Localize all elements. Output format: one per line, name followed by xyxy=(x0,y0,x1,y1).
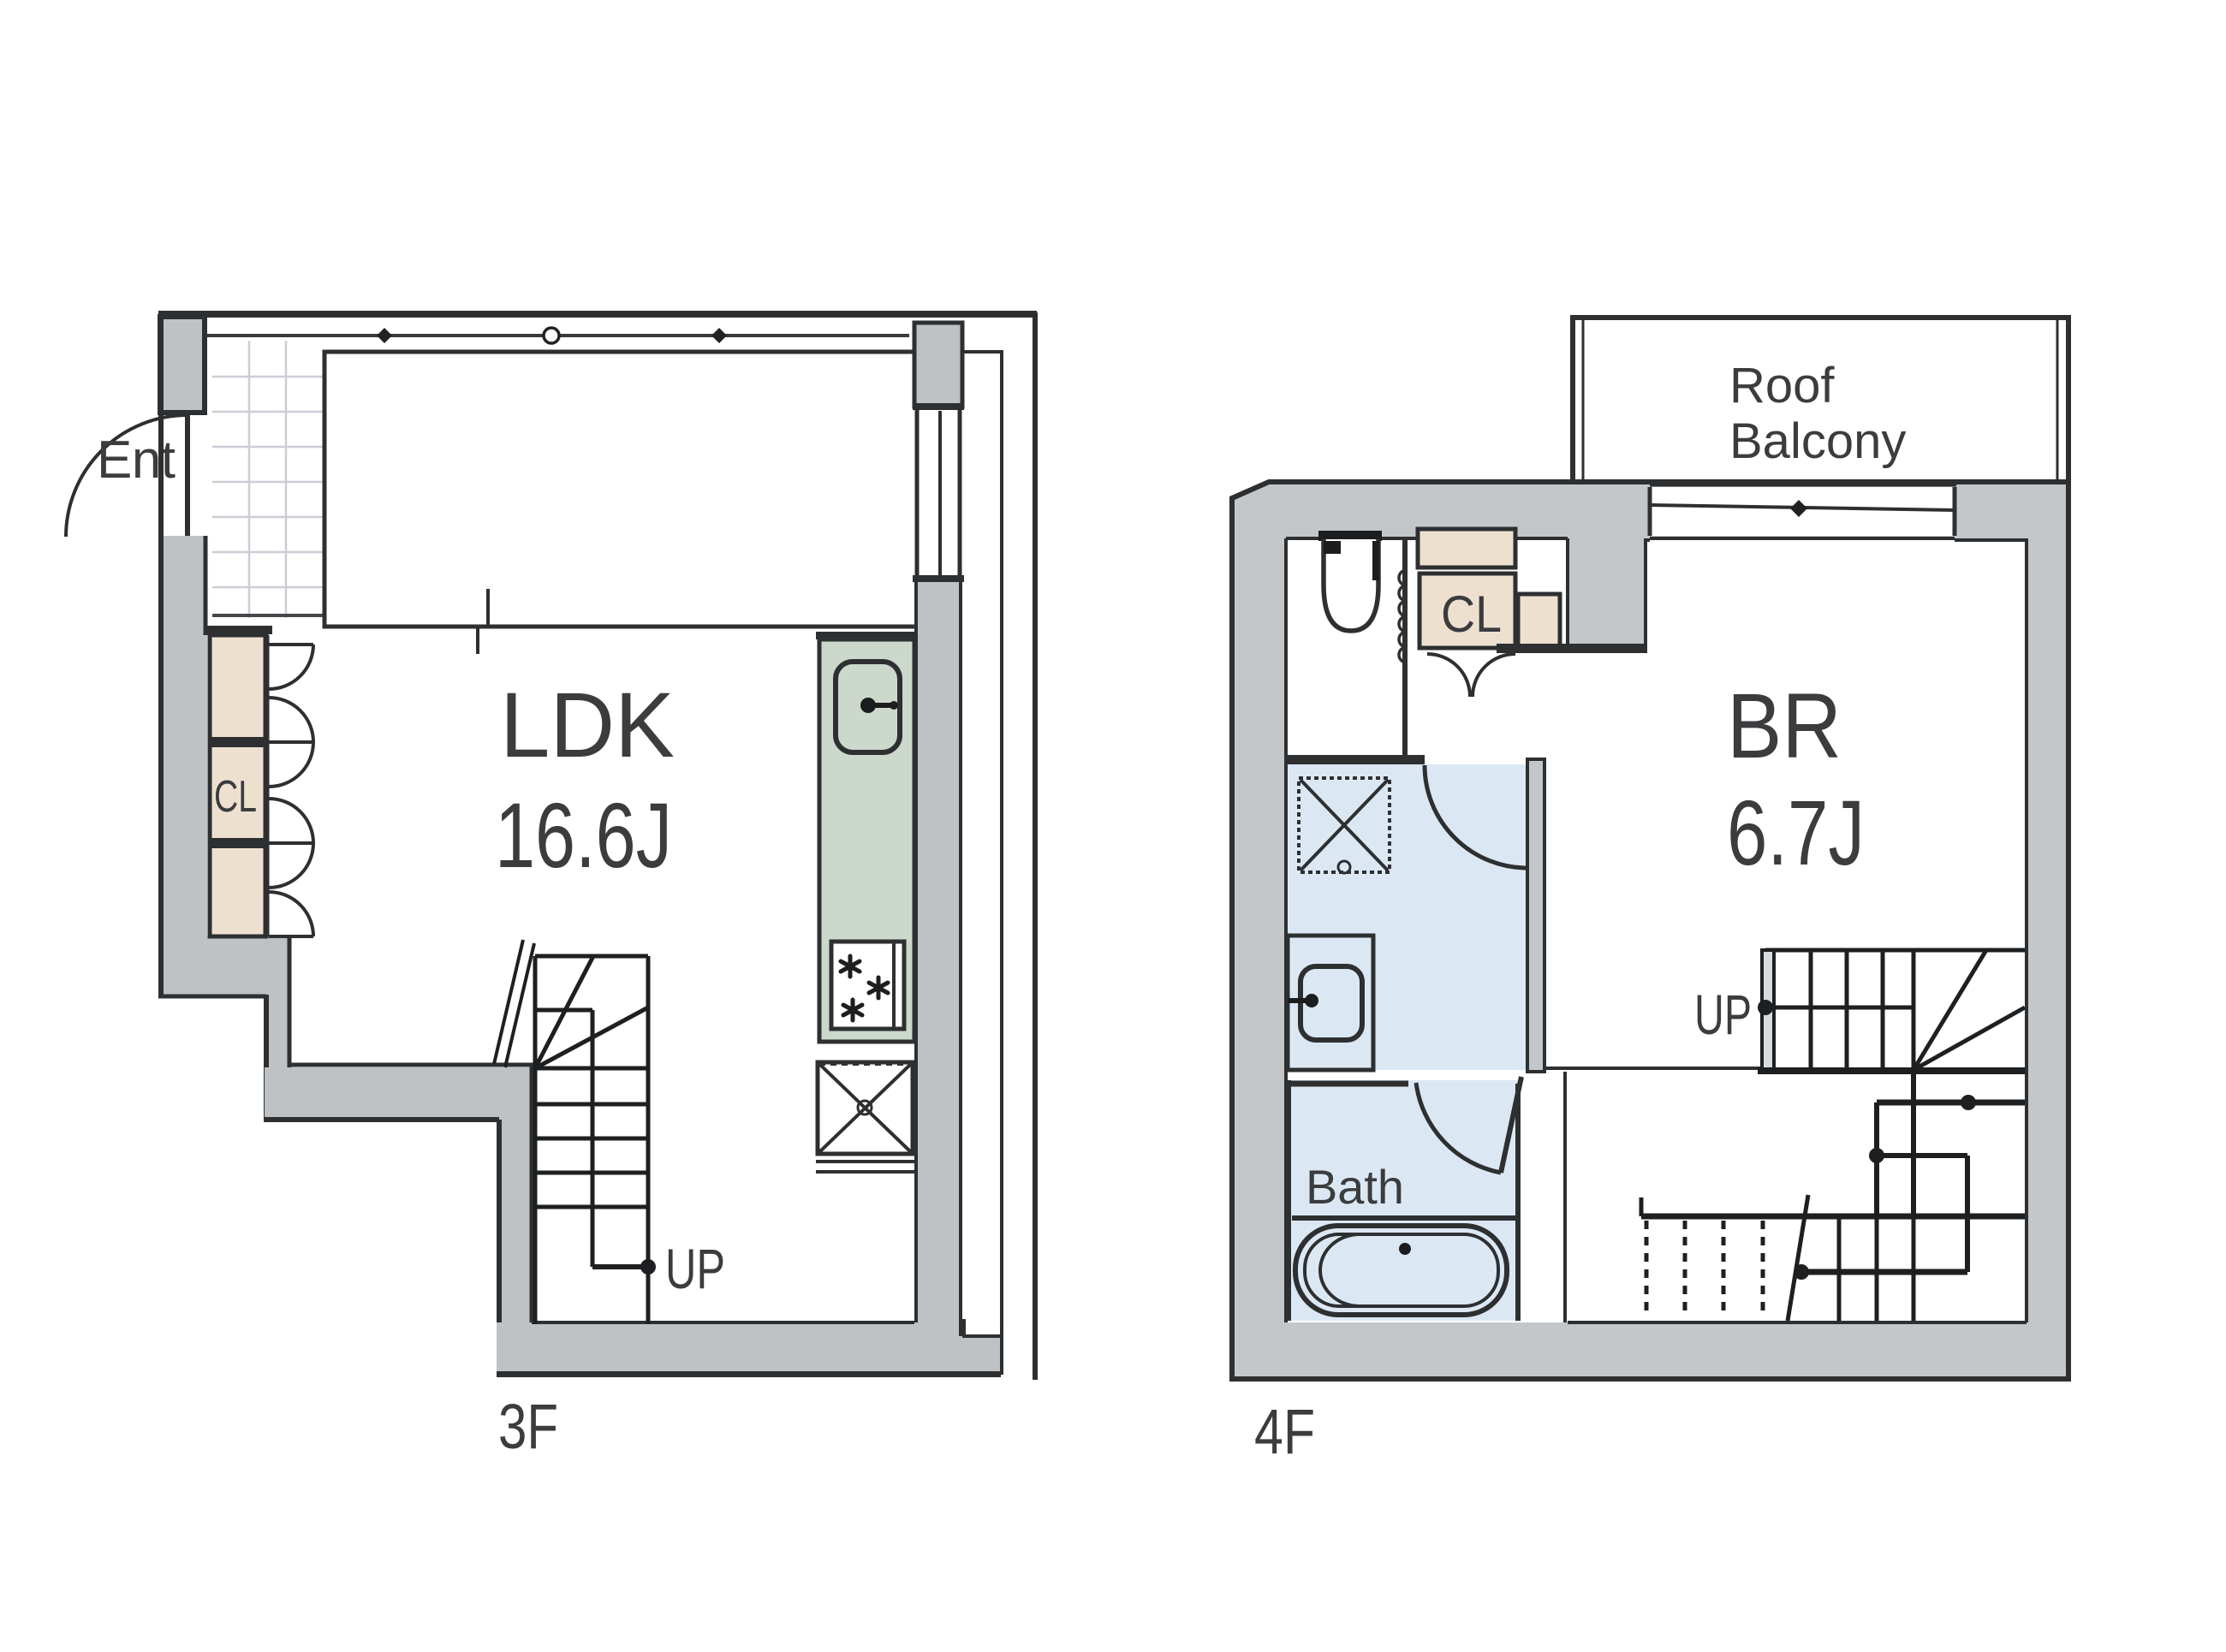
svg-text:Roof: Roof xyxy=(1729,358,1835,413)
svg-text:6.7J: 6.7J xyxy=(1727,781,1865,884)
svg-text:4F: 4F xyxy=(1254,1396,1315,1467)
svg-text:LDK: LDK xyxy=(500,673,675,776)
svg-text:Balcony: Balcony xyxy=(1729,413,1906,469)
svg-text:CL: CL xyxy=(1441,585,1502,643)
svg-text:Ent: Ent xyxy=(97,431,176,490)
svg-text:3F: 3F xyxy=(498,1391,558,1462)
svg-text:16.6J: 16.6J xyxy=(495,783,672,887)
svg-text:Bath: Bath xyxy=(1306,1160,1404,1214)
svg-text:BR: BR xyxy=(1727,674,1842,777)
svg-text:UP: UP xyxy=(665,1237,725,1300)
svg-text:CL: CL xyxy=(214,772,257,822)
svg-text:UP: UP xyxy=(1694,983,1752,1046)
